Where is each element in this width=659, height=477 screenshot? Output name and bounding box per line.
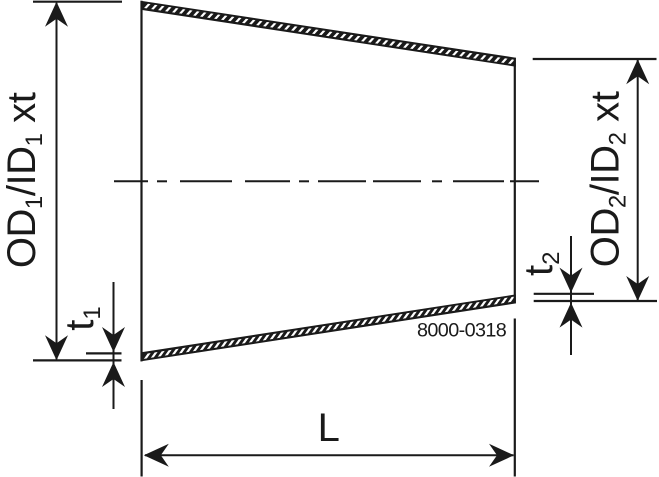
svg-text:L: L <box>318 406 340 450</box>
svg-text:8000-0318: 8000-0318 <box>417 320 507 342</box>
svg-text:OD1/ID1 xt: OD1/ID1 xt <box>0 92 48 268</box>
svg-text:OD2/ID2 xt: OD2/ID2 xt <box>584 91 632 267</box>
